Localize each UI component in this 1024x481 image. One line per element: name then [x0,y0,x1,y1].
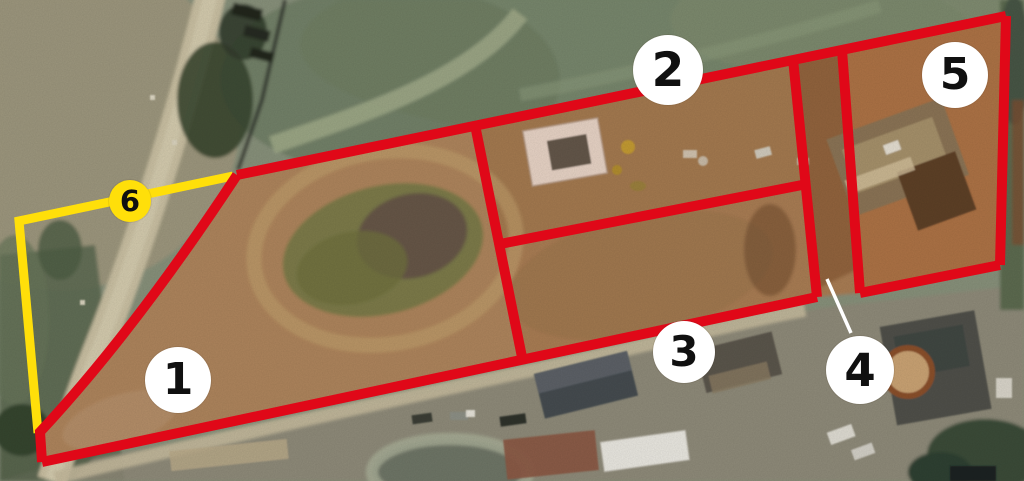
aerial-parcel-map: 1 2 3 4 5 6 [0,0,1024,481]
parcel-marker-1: 1 [145,347,211,413]
parcel-marker-2: 2 [633,35,703,105]
parcel-marker-4: 4 [826,336,894,404]
parcel-marker-3: 3 [653,321,715,383]
map-canvas [0,0,1024,481]
parcel-marker-6: 6 [109,180,151,222]
boundary-right-edge [1000,16,1006,265]
parcel-marker-5: 5 [922,42,988,108]
